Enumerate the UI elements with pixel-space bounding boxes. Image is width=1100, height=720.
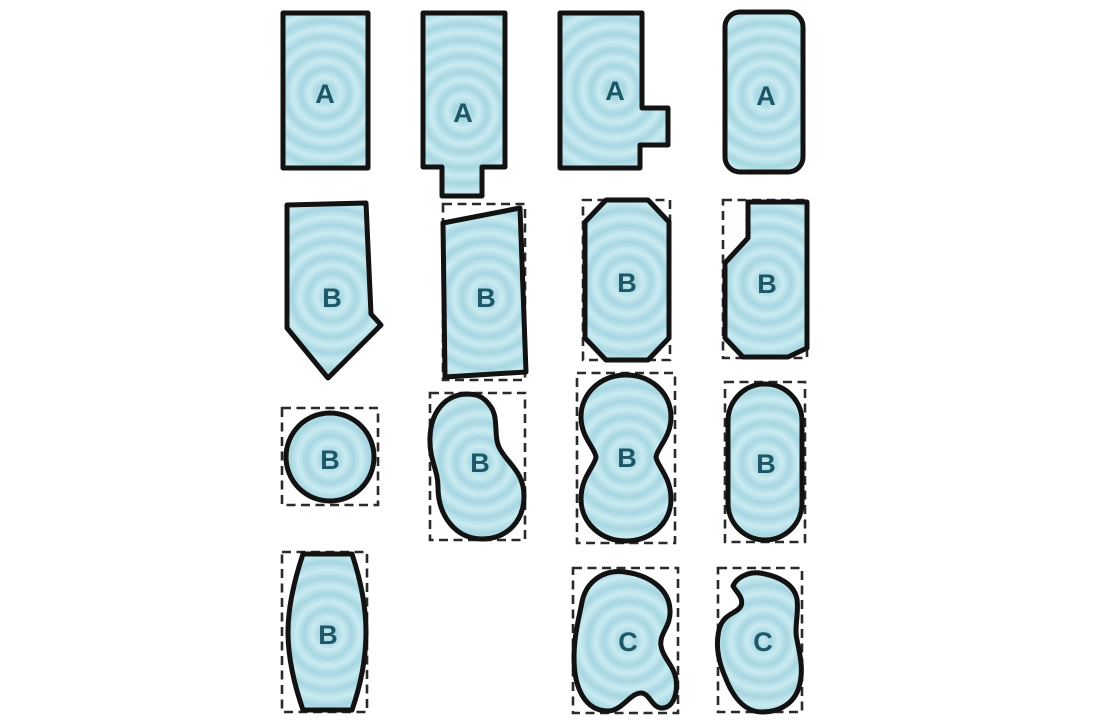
pool-label: B [617, 443, 637, 473]
pool-label: A [756, 81, 776, 111]
pool-label: A [315, 79, 335, 109]
pool-freeform-blob: C [573, 568, 678, 713]
pool-rectangle-right-step: A [560, 13, 668, 168]
pool-label: B [320, 445, 340, 475]
pool-pointed-pentagon: B [287, 203, 381, 378]
pool-label: C [753, 627, 773, 657]
pool-label: B [470, 448, 490, 478]
pool-rounded-rectangle: A [725, 12, 803, 172]
pool-label: C [618, 627, 638, 657]
pool-barrel: B [282, 552, 367, 712]
pool-label: B [318, 620, 338, 650]
pool-label: B [322, 283, 342, 313]
pool-label: B [756, 449, 776, 479]
pool-figure-eight: B [577, 373, 675, 543]
pool-label: A [453, 98, 473, 128]
pool-circle: B [282, 408, 378, 505]
pool-slant-top-quadrilateral: B [443, 204, 526, 380]
pool-stadium: B [725, 382, 805, 542]
pool-rectangle-bottom-tab: A [423, 13, 505, 196]
pool-bean: C [717, 568, 802, 712]
pool-rectangle: A [283, 13, 368, 168]
diagram-canvas: A A A A B B B B B B [0, 0, 1100, 720]
pool-label: B [617, 268, 637, 298]
pool-corner-notched-hexagon: B [723, 200, 807, 358]
pool-kidney: B [430, 393, 525, 540]
pool-shapes-diagram: A A A A B B B B B B [0, 0, 1100, 720]
pool-label: A [605, 76, 625, 106]
pool-label: B [757, 269, 777, 299]
pool-label: B [476, 283, 496, 313]
pool-octagon: B [583, 200, 670, 360]
